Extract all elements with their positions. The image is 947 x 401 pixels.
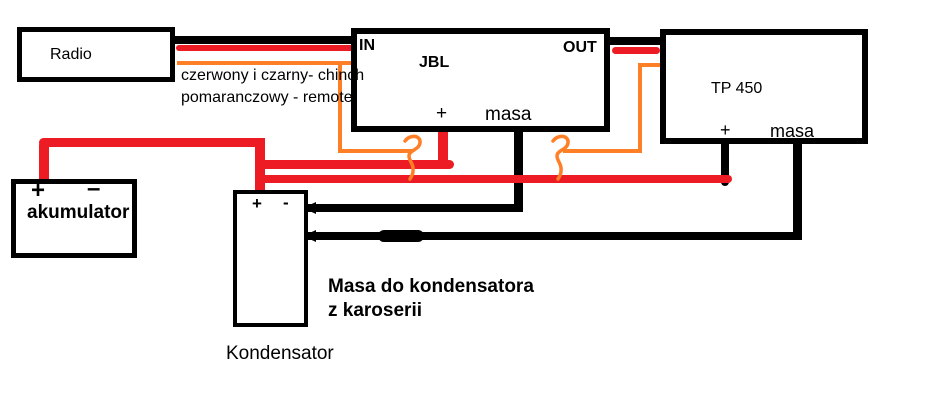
wire-red-battery-top-horizontal (39, 138, 265, 147)
battery-plus-terminal: + (31, 177, 45, 205)
jbl-masa-terminal: masa (485, 104, 531, 126)
wire-black-chassis-ground-overlap (378, 230, 424, 242)
wire-black-radio-to-jbl (170, 36, 355, 44)
remote-wire-squiggle-left (405, 136, 420, 179)
capacitor-box (233, 190, 308, 327)
remote-wire-squiggle-right (553, 136, 568, 179)
jbl-out-label: OUT (563, 39, 597, 57)
wire-orange-radio-horizontal (177, 61, 351, 65)
wire-red-branch-to-jbl-plus (258, 160, 454, 169)
wire-black-jbl-to-tp450 (604, 37, 662, 45)
jbl-label: JBL (419, 54, 449, 72)
battery-minus-terminal: – (87, 175, 100, 203)
wire-orange-tp450-vertical (638, 63, 642, 153)
ground-note-line2: z karoserii (328, 300, 422, 322)
wire-red-main-power-to-tp450 (258, 175, 732, 183)
capacitor-label: Kondensator (226, 343, 334, 365)
wire-orange-to-tp450-horizontal (563, 149, 640, 153)
tp450-label: TP 450 (711, 80, 762, 98)
capacitor-minus-terminal: - (283, 193, 289, 213)
rca-note-line2: pomaranczowy - remote (181, 89, 353, 107)
rca-note-line1: czerwony i czarny- chinch (181, 67, 364, 85)
wire-orange-under-jbl-horizontal (338, 149, 412, 153)
ground-note-line1: Masa do kondensatora (328, 276, 534, 298)
wire-black-jbl-masa-horizontal (308, 204, 521, 212)
tp450-plus-terminal: + (720, 120, 731, 141)
radio-label: Radio (50, 46, 92, 64)
tp450-amplifier-box (660, 29, 868, 144)
wire-red-jbl-plus-stub (438, 128, 448, 168)
wire-orange-into-tp450 (638, 63, 660, 67)
wire-black-jbl-masa-vertical (514, 128, 523, 212)
wire-red-jbl-to-tp450 (612, 47, 660, 54)
car-audio-wiring-diagram: Radio czerwony i czarny- chinch pomaranc… (0, 0, 947, 401)
battery-label: akumulator (27, 202, 129, 224)
jbl-in-label: IN (359, 37, 375, 55)
radio-box (17, 27, 175, 82)
jbl-plus-terminal: + (436, 103, 447, 125)
tp450-masa-terminal: masa (770, 121, 814, 142)
wire-black-tp450-masa-vertical (793, 140, 802, 240)
wire-red-radio-to-jbl (176, 45, 352, 51)
capacitor-plus-terminal: + (252, 194, 262, 214)
